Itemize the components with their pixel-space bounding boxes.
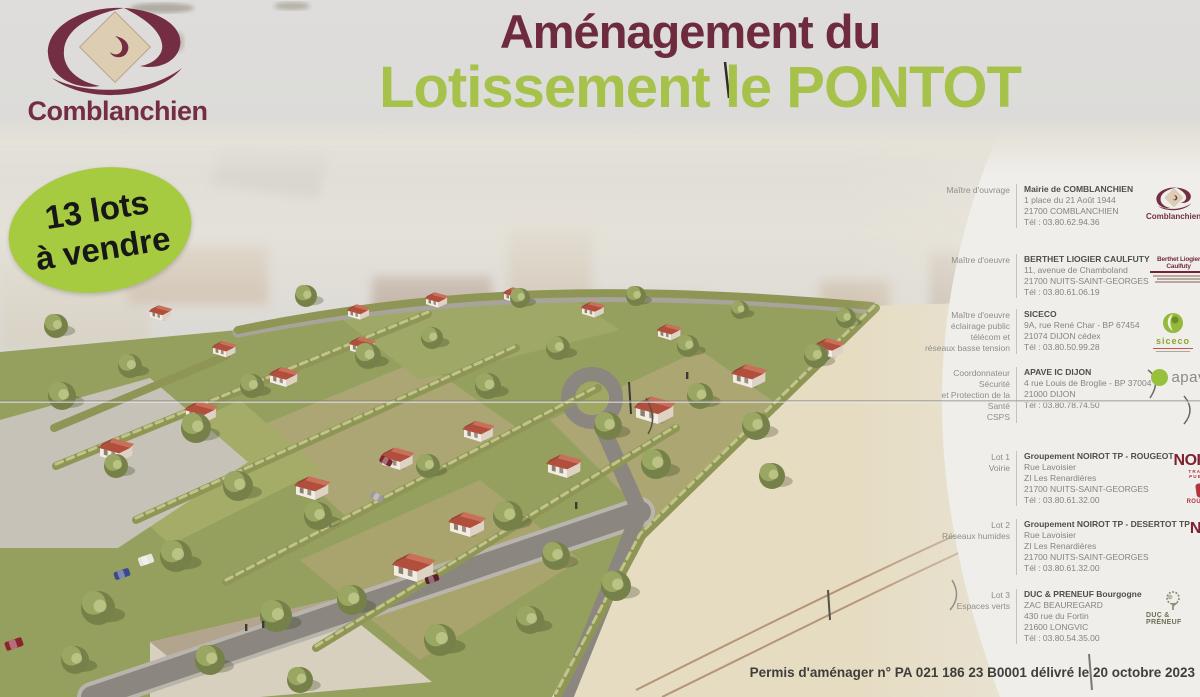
section-info: SICECO9A, rue René Char - BP 6745421074 …	[1017, 309, 1146, 353]
phone-line: Tél : 03.80.61.06.19	[1024, 287, 1150, 298]
brand-name: Comblanchien	[20, 96, 215, 127]
comblanchien-swirl-icon	[1151, 186, 1197, 211]
comblanchien-small-logo: Comblanchien	[1146, 186, 1200, 221]
section-label: Maître d'ouvrage	[922, 184, 1010, 196]
address-line: Rue Lavoisier	[1024, 462, 1174, 473]
section-logos: Comblanchien	[1146, 184, 1200, 221]
address-line: 21700 NUITS-SAINT-GEORGES	[1024, 552, 1190, 563]
sign-title-line1: Aménagement du	[380, 4, 1000, 59]
section-info: BERTHET LIOGIER CAULFUTY11, avenue de Ch…	[1017, 254, 1150, 298]
address-line: ZAC BEAUREGARD	[1024, 600, 1146, 611]
address-line: 21700 NUITS-SAINT-GEORGES	[1024, 276, 1150, 287]
company-name: BERTHET LIOGIER CAULFUTY	[1024, 254, 1150, 265]
address-line: 4 rue Louis de Broglie - BP 37004	[1024, 378, 1151, 389]
address-line: 21000 DIJON	[1024, 389, 1151, 400]
duc-preneuf-logo: DUC & PRÉNEUF	[1146, 591, 1200, 626]
address-line: 11, avenue de Chamboland	[1024, 265, 1150, 276]
rougeot-r-icon: R	[1195, 482, 1200, 498]
section-info: Mairie de COMBLANCHIEN1 place du 21 Août…	[1017, 184, 1146, 228]
company-name: Mairie de COMBLANCHIEN	[1024, 184, 1146, 195]
directory-section: Coordonnateur Sécuritéet Protection de l…	[922, 367, 1200, 423]
address-line: Rue Lavoisier	[1024, 530, 1190, 541]
section-logos: NOIROTTRAVAUX PUBLICS DESERTOT	[1190, 519, 1200, 575]
directory-section: Lot 2Réseaux humides Groupement NOIROT T…	[922, 519, 1200, 575]
directory-section: Maître d'oeuvreéclairage publictélécom e…	[922, 309, 1200, 354]
directory-section: Lot 1Voirie Groupement NOIROT TP - ROUGE…	[922, 451, 1200, 506]
address-line: 21700 NUITS-SAINT-GEORGES	[1024, 484, 1174, 495]
apave-logo: apave	[1151, 369, 1200, 386]
siceco-logo: siceco	[1153, 311, 1193, 352]
section-info: Groupement NOIROT TP - ROUGEOTRue Lavois…	[1017, 451, 1174, 506]
address-line: 21074 DIJON cédex	[1024, 331, 1146, 342]
section-logos: DUC & PRÉNEUF	[1146, 589, 1200, 626]
directory-section: Maître d'ouvrage Mairie de COMBLANCHIEN1…	[922, 184, 1200, 228]
berthet-liogier-caulfuty-logo: Berthet Liogier Caulfuty	[1150, 256, 1200, 284]
phone-line: Tél : 03.80.50.99.28	[1024, 342, 1146, 353]
section-label: Maître d'oeuvre	[922, 254, 1010, 266]
section-info: DUC & PRENEUF BourgogneZAC BEAUREGARD430…	[1017, 589, 1146, 644]
section-label: Maître d'oeuvreéclairage publictélécom e…	[922, 309, 1010, 354]
section-label: Lot 1Voirie	[922, 451, 1010, 474]
comblanchien-swirl-icon	[28, 2, 203, 98]
address-line: 430 rue du Fortin	[1024, 611, 1146, 622]
sign-title-line2: Lotissement le PONTOT	[330, 54, 1070, 121]
apave-dot-icon	[1151, 369, 1168, 386]
company-name: Groupement NOIROT TP - ROUGEOT	[1024, 451, 1174, 462]
siceco-icon	[1160, 311, 1186, 335]
section-info: APAVE IC DIJON4 rue Louis de Broglie - B…	[1017, 367, 1151, 411]
noirot-logo: NOIROTTRAVAUX PUBLICS	[1190, 521, 1200, 547]
section-label: Lot 3Espaces verts	[922, 589, 1010, 612]
section-logos: NOIROTTRAVAUX PUBLICSRROUGEOT	[1174, 451, 1200, 505]
section-logos: siceco	[1146, 309, 1200, 352]
section-label: Coordonnateur Sécuritéet Protection de l…	[922, 367, 1010, 423]
phone-line: Tél : 03.80.61.32.00	[1024, 563, 1190, 574]
noirot-logo: NOIROTTRAVAUX PUBLICS	[1174, 453, 1200, 479]
phone-line: Tél : 03.80.62.94.36	[1024, 217, 1146, 228]
address-line: 21600 LONGVIC	[1024, 622, 1146, 633]
section-logos: Berthet Liogier Caulfuty	[1150, 254, 1200, 284]
phone-line: Tél : 03.80.61.32.00	[1024, 495, 1174, 506]
address-line: 9A, rue René Char - BP 67454	[1024, 320, 1146, 331]
section-logos: apave	[1151, 367, 1200, 386]
development-sign-board: Aménagement du Lotissement le PONTOT Com…	[0, 0, 1200, 697]
directory-section: Maître d'oeuvre BERTHET LIOGIER CAULFUTY…	[922, 254, 1200, 298]
phone-line: Tél : 03.80.54.35.00	[1024, 633, 1146, 644]
permit-text: Permis d'aménager n° PA 021 186 23 B0001…	[750, 665, 1195, 680]
directory-section: Lot 3Espaces verts DUC & PRENEUF Bourgog…	[922, 589, 1200, 644]
address-line: 21700 COMBLANCHIEN	[1024, 206, 1146, 217]
address-line: ZI Les Renardières	[1024, 541, 1190, 552]
tree-icon	[1162, 591, 1184, 611]
panel-seam	[0, 400, 1200, 403]
comblanchien-logo	[28, 2, 203, 98]
company-name: APAVE IC DIJON	[1024, 367, 1151, 378]
section-label: Lot 2Réseaux humides	[922, 519, 1010, 542]
rougeot-logo: RROUGEOT	[1187, 483, 1200, 505]
section-info: Groupement NOIROT TP - DESERTOT TPRue La…	[1017, 519, 1190, 574]
address-line: 1 place du 21 Août 1944	[1024, 195, 1146, 206]
company-name: SICECO	[1024, 309, 1146, 320]
company-name: DUC & PRENEUF Bourgogne	[1024, 589, 1146, 600]
company-name: Groupement NOIROT TP - DESERTOT TP	[1024, 519, 1190, 530]
address-line: ZI Les Renardières	[1024, 473, 1174, 484]
